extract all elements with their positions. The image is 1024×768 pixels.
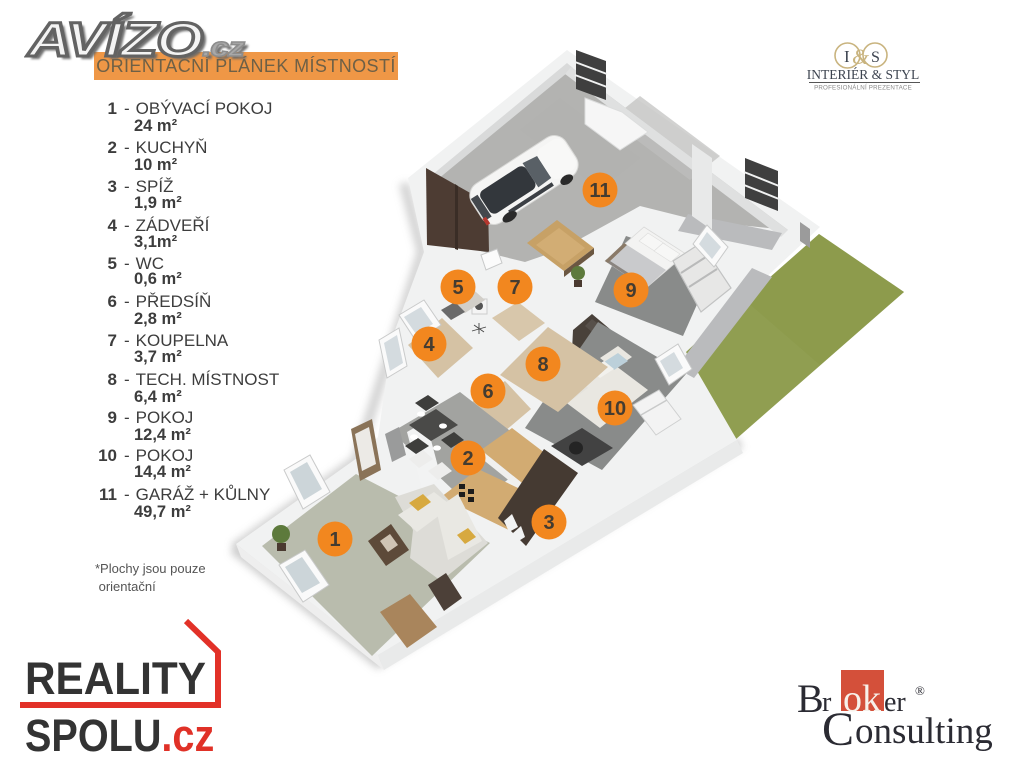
- svg-text:6: 6: [482, 381, 493, 403]
- svg-text:3: 3: [543, 512, 554, 534]
- svg-text:onsulting: onsulting: [855, 711, 993, 752]
- svg-text:&: &: [852, 44, 870, 69]
- svg-text:9: 9: [625, 280, 636, 302]
- svg-text:INTERIÉR & STYL: INTERIÉR & STYL: [807, 67, 920, 82]
- svg-text:11: 11: [589, 180, 610, 202]
- svg-text:5: 5: [452, 277, 463, 299]
- svg-text:2: 2: [462, 448, 473, 470]
- svg-text:8: 8: [537, 354, 548, 376]
- svg-text:PROFESIONÁLNÍ PREZENTACE: PROFESIONÁLNÍ PREZENTACE: [814, 85, 912, 92]
- svg-text:4: 4: [423, 334, 435, 356]
- svg-text:10: 10: [604, 398, 626, 420]
- svg-text:I: I: [844, 47, 850, 66]
- svg-text:B: B: [797, 676, 824, 721]
- svg-text:S: S: [871, 49, 880, 66]
- svg-text:1: 1: [329, 529, 340, 551]
- svg-text:®: ®: [915, 683, 925, 698]
- svg-text:7: 7: [509, 277, 520, 299]
- svg-text:C: C: [822, 703, 854, 756]
